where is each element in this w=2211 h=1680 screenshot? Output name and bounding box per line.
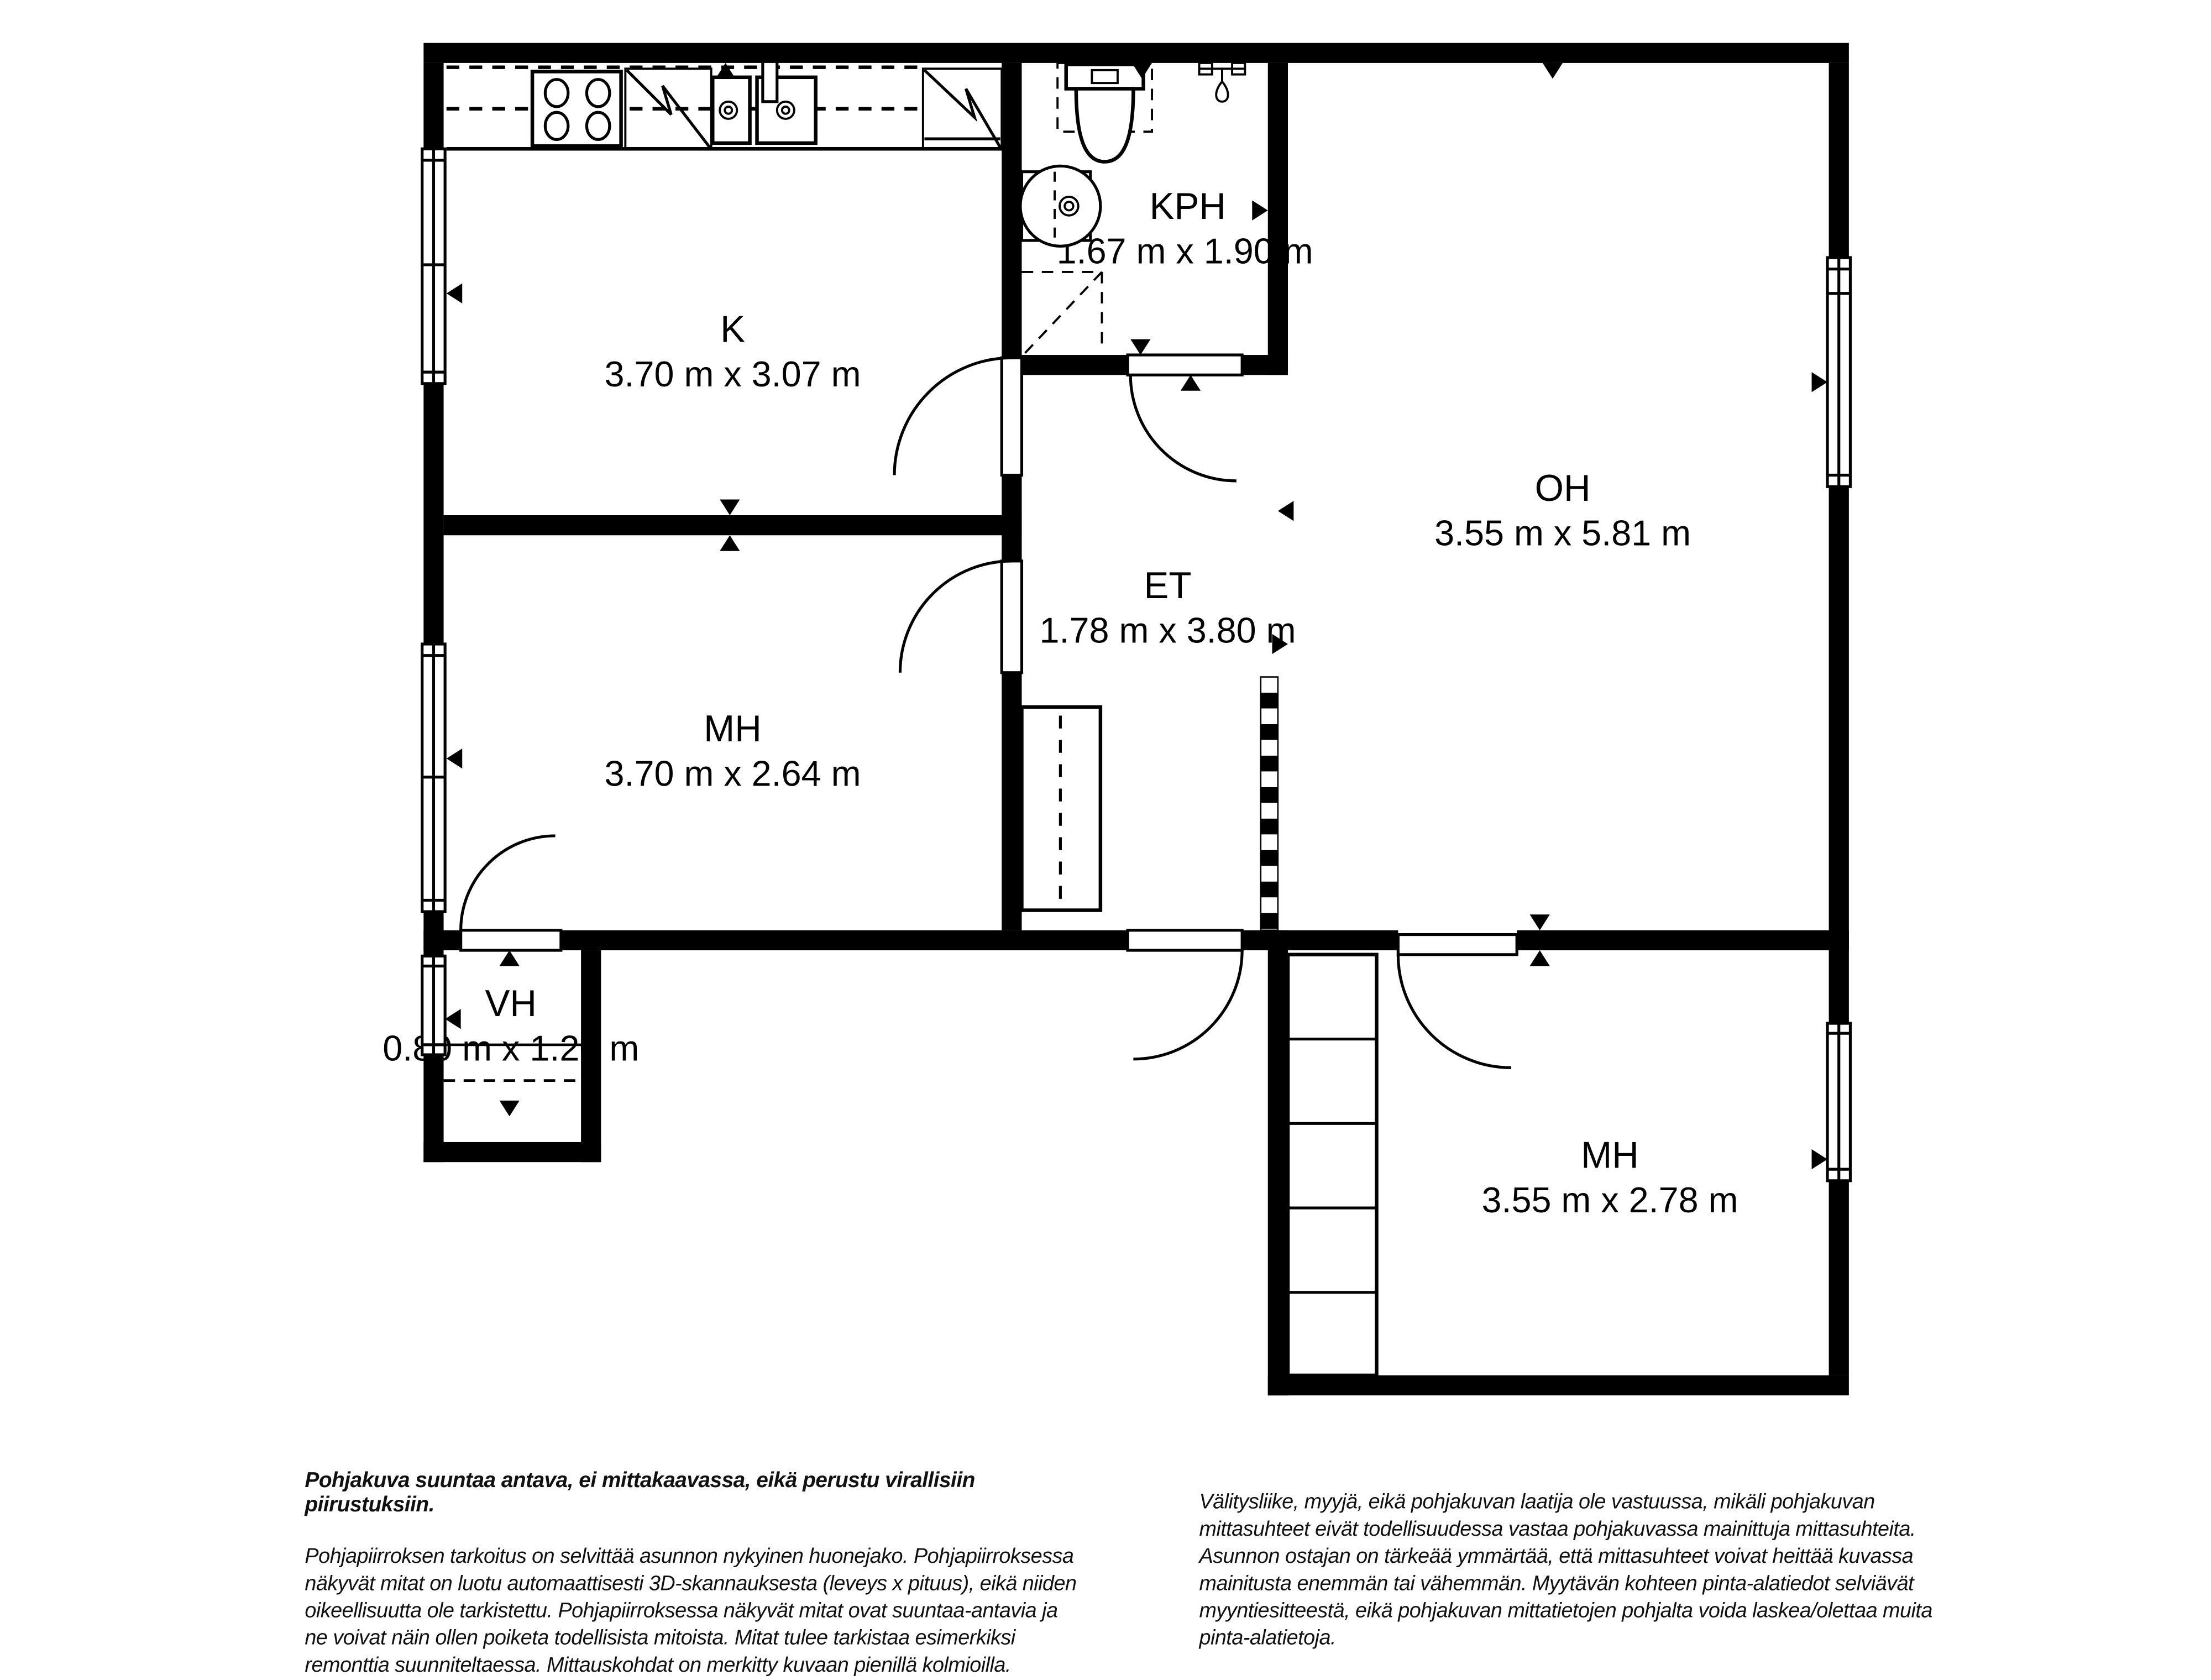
wall-closet-bottom bbox=[423, 1142, 601, 1162]
measure-triangle-right-icon bbox=[1812, 372, 1827, 392]
svg-text:ET: ET bbox=[1144, 565, 1192, 606]
svg-text:K: K bbox=[720, 309, 745, 350]
wall-outer-right bbox=[1829, 486, 1849, 1023]
hallway-closet bbox=[1021, 707, 1100, 910]
measure-triangle-left-icon bbox=[447, 749, 462, 768]
measure-triangle-down-icon bbox=[500, 1101, 520, 1116]
bedroom2-wardrobe bbox=[1288, 955, 1377, 1375]
measure-triangle-up-icon bbox=[500, 950, 520, 966]
disclaimer-title: Pohjakuva suuntaa antava, ei mittakaavas… bbox=[305, 1468, 1077, 1517]
disclaimer-line: mittasuhteet eivät todellisuudessa vasta… bbox=[1199, 1517, 1936, 1544]
bedroom1-window bbox=[422, 644, 445, 912]
svg-text:VH: VH bbox=[485, 983, 537, 1024]
measure-triangle-up-icon bbox=[1181, 375, 1201, 390]
measure-triangle-down-icon bbox=[1543, 63, 1563, 78]
wall-kitchen-bedroom bbox=[444, 515, 1022, 535]
bedroom2-door bbox=[1398, 935, 1517, 1068]
svg-text:3.55 m x 5.81 m: 3.55 m x 5.81 m bbox=[1434, 512, 1691, 553]
room-label-kitchen: K 3.70 m x 3.07 m bbox=[605, 309, 861, 394]
svg-text:MH: MH bbox=[704, 708, 762, 750]
disclaimer-line: näkyvät mitat on luotu automaattisesti 3… bbox=[305, 1572, 1077, 1599]
stove-icon bbox=[532, 71, 621, 146]
measure-triangle-down-icon bbox=[1130, 339, 1150, 355]
svg-text:3.70 m x 3.07 m: 3.70 m x 3.07 m bbox=[605, 354, 861, 394]
svg-text:1.78 m x 3.80 m: 1.78 m x 3.80 m bbox=[1040, 610, 1296, 650]
wall-outer-right bbox=[1829, 63, 1849, 258]
disclaimer-line: pinta-alatietoja. bbox=[1199, 1626, 1936, 1653]
disclaimer-line: Välitysliike, myyjä, eikä pohjakuvan laa… bbox=[1199, 1490, 1936, 1517]
room-label-living-room: OH 3.55 m x 5.81 m bbox=[1434, 468, 1691, 553]
toilet-icon bbox=[1057, 63, 1152, 162]
svg-text:KPH: KPH bbox=[1150, 186, 1226, 227]
wall-bottom-band bbox=[1517, 930, 1849, 950]
wall-bedroom2-left bbox=[1268, 930, 1288, 1395]
windows bbox=[422, 149, 1851, 1181]
disclaimer-right-block: Välitysliike, myyjä, eikä pohjakuvan laa… bbox=[1199, 1490, 1936, 1653]
washbasin-icon bbox=[1020, 166, 1101, 246]
shower-head-icon bbox=[1199, 63, 1245, 102]
room-label-bedroom-1: MH 3.70 m x 2.64 m bbox=[605, 708, 861, 793]
measure-triangle-left-icon bbox=[445, 1009, 460, 1029]
svg-text:3.55 m x 2.78 m: 3.55 m x 2.78 m bbox=[1481, 1180, 1738, 1220]
disclaimer-line: Asunnon ostajan on tärkeää ymmärtää, ett… bbox=[1199, 1544, 1936, 1571]
measure-triangle-left-icon bbox=[1278, 501, 1293, 521]
disclaimer-line: remonttia suunniteltaessa. Mittauskohdat… bbox=[305, 1653, 1077, 1680]
wall-bathroom-right bbox=[1268, 63, 1288, 375]
measure-triangle-right-icon bbox=[1812, 1149, 1827, 1169]
svg-text:OH: OH bbox=[1535, 468, 1591, 509]
kitchen-door bbox=[894, 358, 1021, 475]
shower-area-icon bbox=[1021, 272, 1102, 354]
measure-triangle-left-icon bbox=[447, 284, 462, 303]
room-label-hallway: ET 1.78 m x 3.80 m bbox=[1040, 565, 1296, 650]
wall-bathroom-bottom bbox=[1021, 355, 1128, 375]
wall-outer-left bbox=[423, 384, 443, 644]
hallway-south-door bbox=[1128, 930, 1242, 1059]
wall-kitchen-right bbox=[1002, 63, 1021, 358]
living-room-window bbox=[1827, 258, 1850, 486]
measure-triangle-down-icon bbox=[1530, 914, 1550, 930]
measure-triangle-right-icon bbox=[1252, 200, 1267, 220]
disclaimer-line: Pohjapiirroksen tarkoitus on selvittää a… bbox=[305, 1544, 1077, 1571]
floor-plan-drawing: K 3.70 m x 3.07 m KPH 1.67 m x 1.90 m OH… bbox=[0, 0, 2211, 1659]
disclaimer-line: oikeellisuutta ole tarkistettu. Pohjapii… bbox=[305, 1599, 1077, 1626]
floor-plan-page: K 3.70 m x 3.07 m KPH 1.67 m x 1.90 m OH… bbox=[0, 0, 2211, 1659]
disclaimer-line: mainitusta enemmän tai vähemmän. Myytävä… bbox=[1199, 1572, 1936, 1599]
measure-triangle-up-icon bbox=[715, 63, 735, 78]
measure-triangle-up-icon bbox=[720, 535, 740, 551]
wall-bedroom1-right bbox=[1002, 673, 1021, 930]
bathroom-door bbox=[1128, 355, 1242, 481]
wall-closet-right bbox=[581, 950, 601, 1162]
svg-text:MH: MH bbox=[1581, 1135, 1639, 1176]
wall-kitchen-right bbox=[1002, 475, 1021, 561]
wall-outer-top bbox=[423, 43, 1849, 63]
measure-triangle-down-icon bbox=[720, 500, 740, 515]
room-label-bedroom-2: MH 3.55 m x 2.78 m bbox=[1481, 1135, 1738, 1220]
wall-outer-left bbox=[423, 63, 443, 149]
closet-window bbox=[422, 956, 445, 1055]
room-divider-strip bbox=[1261, 677, 1278, 930]
bedroom1-door bbox=[900, 561, 1021, 673]
disclaimer-line: ne voivat näin ollen poiketa todellisist… bbox=[305, 1626, 1077, 1653]
svg-text:3.70 m x 2.64 m: 3.70 m x 2.64 m bbox=[605, 753, 861, 793]
measure-triangle-up-icon bbox=[1530, 950, 1550, 966]
wall-bottom-band bbox=[423, 930, 460, 950]
wall-bottom-band bbox=[1242, 930, 1398, 950]
disclaimer-left-block: Pohjakuva suuntaa antava, ei mittakaavas… bbox=[305, 1468, 1077, 1680]
closet-door bbox=[461, 836, 561, 950]
wall-bottom-band bbox=[561, 930, 1128, 950]
kitchen-window bbox=[422, 149, 445, 384]
bedroom2-window bbox=[1827, 1023, 1850, 1181]
disclaimer-line: myyntiesitteestä, eikä pohjakuvan mittat… bbox=[1199, 1599, 1936, 1626]
fridge-icon bbox=[923, 69, 1002, 149]
wall-outer-right bbox=[1829, 1181, 1849, 1375]
